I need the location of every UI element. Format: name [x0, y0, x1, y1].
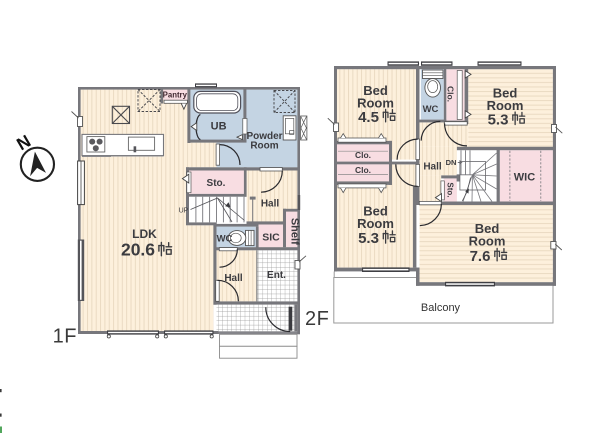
svg-text:7.6: 7.6 — [470, 248, 491, 265]
svg-text:Shelf: Shelf — [288, 218, 300, 245]
svg-text:Hall: Hall — [224, 273, 243, 284]
svg-text:4.5: 4.5 — [358, 109, 379, 126]
svg-text:20.6: 20.6 — [121, 240, 155, 260]
svg-text:Balcony: Balcony — [421, 302, 461, 314]
svg-text:Pantry: Pantry — [163, 91, 188, 100]
svg-text:1F: 1F — [53, 326, 77, 348]
svg-text:Room: Room — [357, 216, 394, 231]
svg-text:Clo.: Clo. — [355, 150, 371, 160]
svg-text:Clo.: Clo. — [446, 86, 456, 102]
svg-text:DN: DN — [446, 158, 457, 167]
svg-text:Hall: Hall — [423, 162, 442, 173]
svg-text:2F: 2F — [305, 308, 329, 330]
svg-text:Ent.: Ent. — [267, 270, 286, 281]
svg-text:Clo.: Clo. — [355, 165, 371, 175]
svg-text:UB: UB — [211, 120, 227, 132]
svg-text:UP: UP — [179, 207, 189, 214]
svg-text:WIC: WIC — [514, 172, 535, 184]
svg-text:5.3: 5.3 — [488, 112, 509, 129]
svg-text:Hall: Hall — [261, 199, 280, 210]
svg-text:Room: Room — [250, 141, 278, 152]
svg-text:WC: WC — [423, 104, 439, 115]
svg-text:WC: WC — [217, 234, 233, 245]
svg-text:Sto.: Sto. — [446, 182, 455, 197]
svg-text:Room: Room — [469, 234, 506, 249]
svg-text:SIC: SIC — [262, 232, 280, 244]
svg-text:5.3: 5.3 — [358, 230, 379, 247]
svg-text:Sto.: Sto. — [207, 178, 226, 189]
